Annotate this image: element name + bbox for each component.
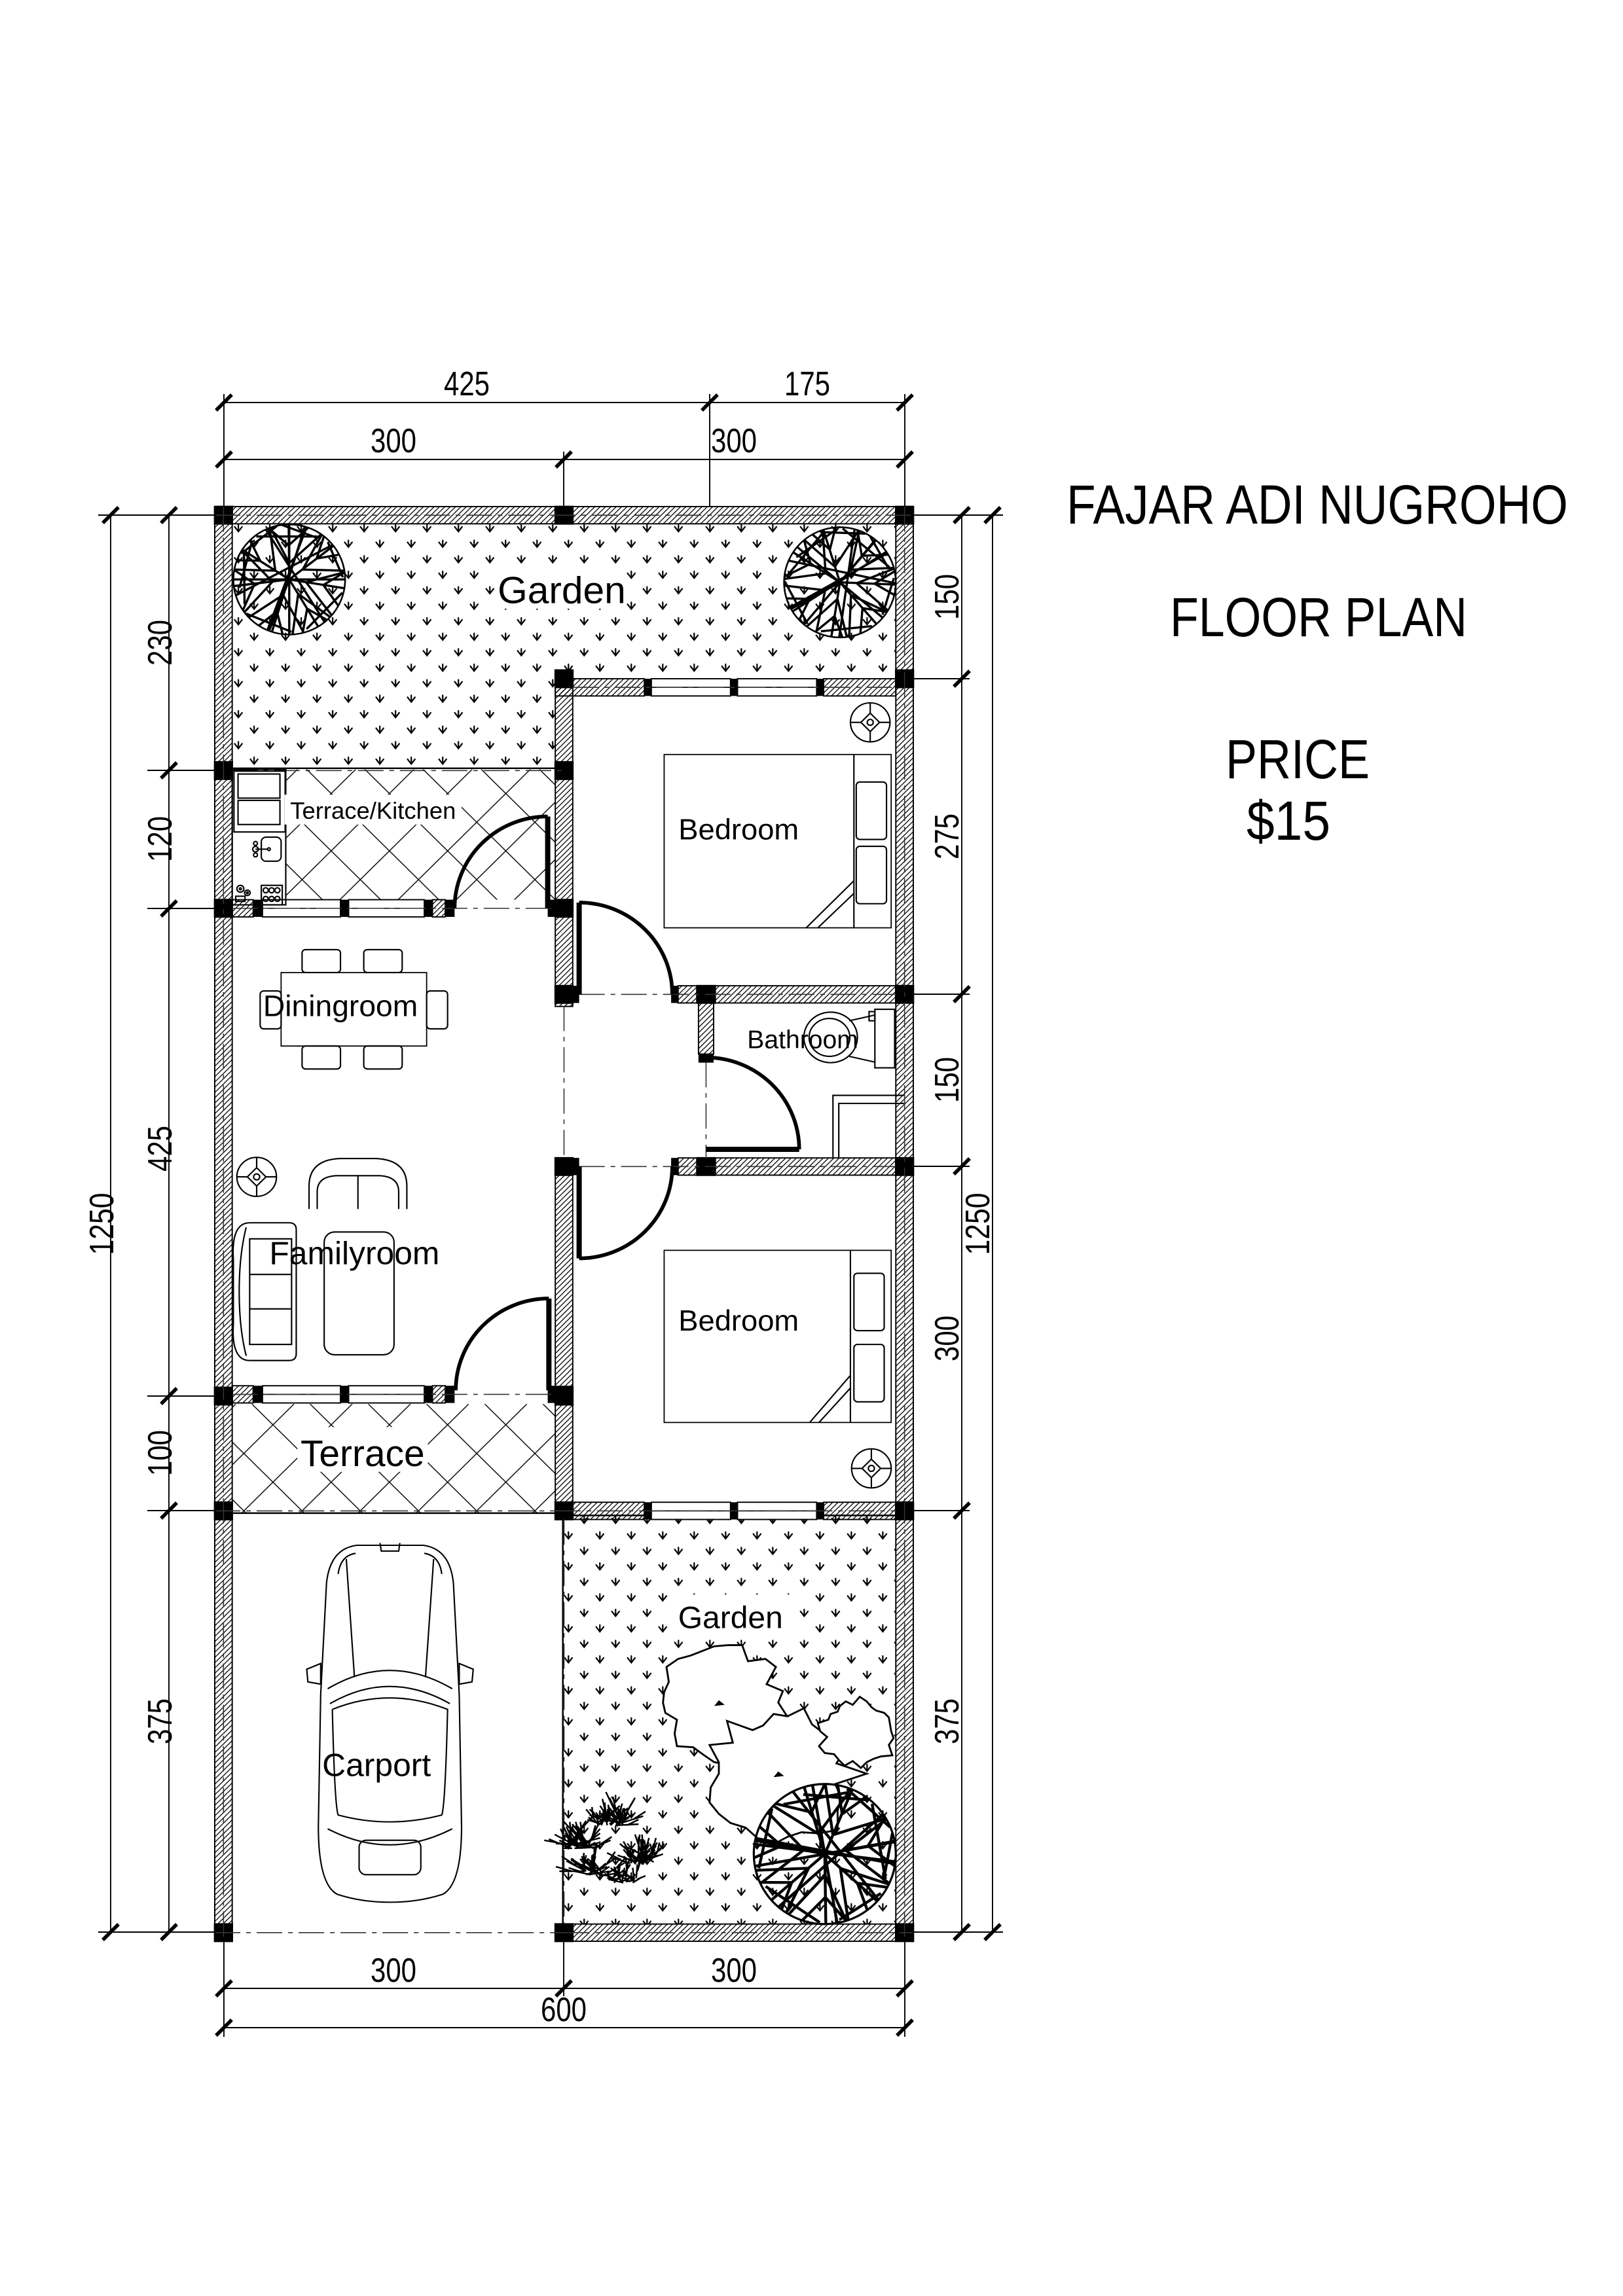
svg-text:300: 300 bbox=[928, 1316, 966, 1361]
svg-text:$15: $15 bbox=[1247, 790, 1330, 852]
svg-text:FAJAR ADI NUGROHO: FAJAR ADI NUGROHO bbox=[1067, 474, 1568, 535]
svg-text:1250: 1250 bbox=[83, 1193, 121, 1255]
svg-text:Garden: Garden bbox=[678, 1601, 783, 1636]
svg-text:Carport: Carport bbox=[322, 1748, 431, 1784]
svg-text:425: 425 bbox=[141, 1126, 179, 1172]
svg-text:150: 150 bbox=[928, 1057, 966, 1103]
svg-text:300: 300 bbox=[371, 1952, 416, 1990]
svg-text:300: 300 bbox=[371, 422, 416, 460]
svg-text:175: 175 bbox=[784, 365, 830, 403]
svg-text:Diningroom: Diningroom bbox=[263, 989, 418, 1023]
svg-text:Terrace: Terrace bbox=[301, 1433, 425, 1474]
svg-text:375: 375 bbox=[928, 1698, 966, 1744]
svg-text:600: 600 bbox=[541, 1991, 587, 2029]
svg-text:Bedroom: Bedroom bbox=[678, 813, 799, 846]
svg-text:Terrace/Kitchen: Terrace/Kitchen bbox=[290, 797, 456, 824]
svg-text:Garden: Garden bbox=[498, 569, 626, 612]
svg-text:1250: 1250 bbox=[959, 1193, 997, 1255]
svg-text:300: 300 bbox=[711, 422, 757, 460]
svg-text:120: 120 bbox=[141, 816, 179, 862]
svg-text:Bedroom: Bedroom bbox=[678, 1304, 799, 1337]
svg-text:150: 150 bbox=[928, 574, 966, 620]
svg-text:230: 230 bbox=[141, 620, 179, 666]
svg-text:275: 275 bbox=[928, 814, 966, 859]
svg-text:375: 375 bbox=[141, 1698, 179, 1744]
svg-text:100: 100 bbox=[141, 1430, 179, 1476]
svg-text:FLOOR PLAN: FLOOR PLAN bbox=[1170, 586, 1467, 648]
svg-text:Bathroom: Bathroom bbox=[747, 1026, 858, 1054]
svg-text:425: 425 bbox=[444, 365, 490, 403]
svg-text:PRICE: PRICE bbox=[1226, 728, 1370, 790]
svg-text:Familyroom: Familyroom bbox=[269, 1236, 439, 1272]
svg-text:300: 300 bbox=[711, 1952, 757, 1990]
